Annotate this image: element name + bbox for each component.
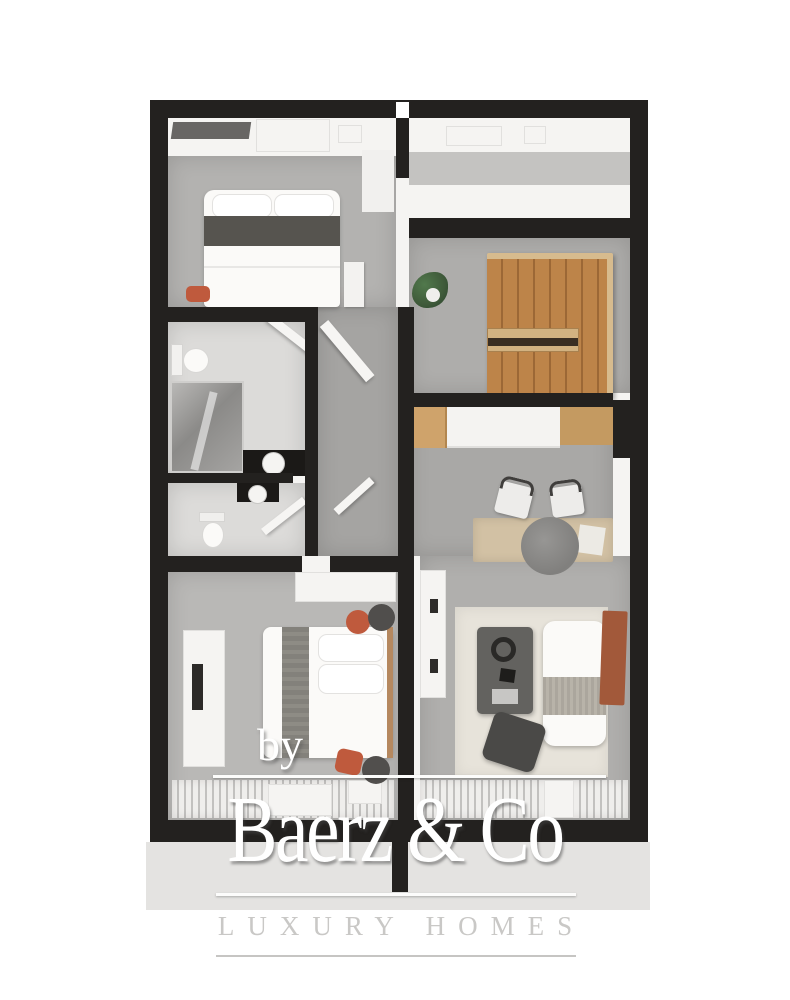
wall-spine-top [396, 118, 409, 178]
pouf-dark [368, 604, 395, 631]
kitchen-cabinet-wood-left [409, 407, 447, 448]
shower-glass-shine [190, 391, 217, 471]
coffee-table [477, 627, 533, 714]
toilet-tank-wc [199, 512, 225, 522]
wall-bedroom-top-bottom [150, 307, 318, 322]
ac-unit-entry [446, 126, 502, 146]
stool-orange-2 [334, 748, 364, 777]
wall-top-notch [396, 102, 409, 118]
decor-box [499, 668, 516, 683]
toilet-bowl-wc [202, 522, 224, 548]
cabinet-spine-wall [420, 570, 446, 698]
wall-closet-bottom [409, 393, 613, 407]
kitchen-cabinet-wood-right [560, 407, 613, 445]
shelf-shadow-slot [488, 338, 578, 346]
sofa-throw-blanket [543, 677, 606, 715]
cabinet-handle [430, 659, 438, 673]
wall-entry-bottom [409, 218, 648, 238]
skylight-entry [524, 126, 546, 144]
closet-shelf [487, 328, 579, 352]
decor-tray [492, 689, 518, 704]
sink-round-wc [248, 485, 267, 504]
wall-spine-main [398, 307, 414, 820]
table-papers [576, 524, 606, 555]
round-rug [521, 517, 579, 575]
sofa [543, 621, 606, 746]
bench-white [344, 262, 364, 307]
wall-bedroom-bottom-top-b [330, 556, 398, 572]
plant-pot [426, 288, 440, 302]
tv-screen [192, 664, 203, 710]
pillow [212, 194, 272, 218]
watermark-brand: Baerz & Co [183, 780, 607, 880]
wardrobe-white [183, 630, 225, 767]
sink-round [262, 452, 285, 475]
wall-stub-right [613, 400, 637, 458]
wall-bathroom-divider [168, 473, 293, 483]
hallway-floor [318, 307, 398, 556]
watermark-by: by [230, 722, 330, 768]
pillow [274, 194, 334, 218]
closet-wood-unit [487, 253, 613, 399]
ac-unit [256, 119, 330, 152]
wardrobe-dark-top [171, 122, 251, 139]
toilet-tank [171, 344, 183, 376]
stool-orange [186, 286, 210, 302]
dining-chair [549, 484, 585, 518]
terracotta-mat [599, 611, 627, 706]
watermark-tagline: LUXURY HOMES [130, 906, 660, 946]
wall-bedroom-bottom-top-a [150, 556, 302, 572]
cabinet-top-wall [295, 572, 396, 602]
toilet-bowl [183, 348, 209, 373]
cabinet-handle [430, 599, 438, 613]
bed-double-top [204, 190, 340, 307]
shower [170, 381, 244, 473]
pillow [318, 634, 384, 662]
wall-right [630, 100, 648, 842]
floorplan-image: by Baerz & Co LUXURY HOMES [0, 0, 790, 1000]
decor-ring [491, 637, 516, 662]
watermark-line-middle [216, 893, 576, 896]
watermark-line-bottom [216, 955, 576, 957]
skylight [338, 125, 362, 143]
bedside-column [362, 150, 394, 212]
wall-left [150, 100, 168, 842]
bed-runner-band [204, 216, 340, 246]
pillow [318, 664, 384, 694]
pouf-orange [346, 610, 370, 634]
wall-bathroom-right [305, 307, 318, 556]
duvet-fold [204, 266, 340, 268]
entry-hall-floor [409, 152, 630, 185]
headboard [387, 627, 393, 758]
